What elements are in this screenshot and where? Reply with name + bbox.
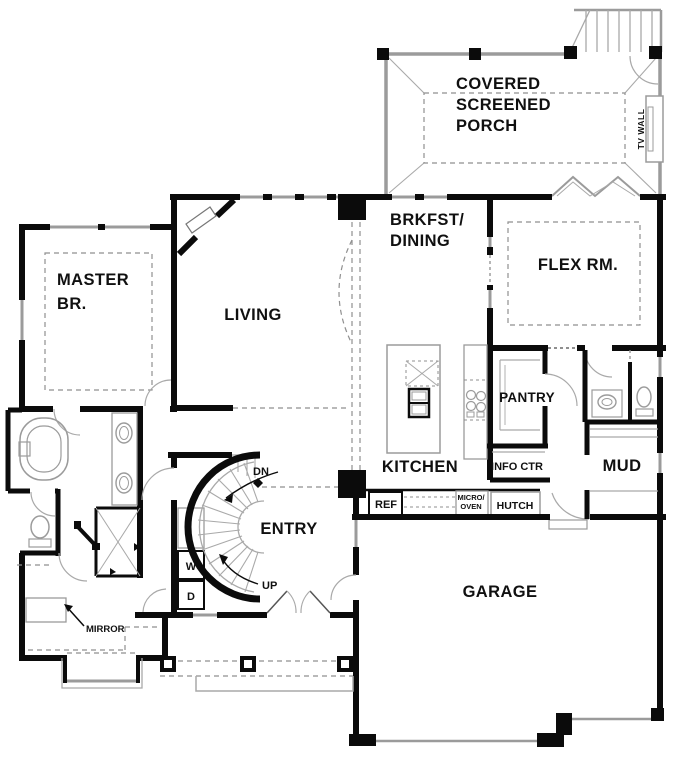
porch-label-line2: SCREENED — [456, 96, 551, 114]
micro-label-line1: MICRO/ — [457, 493, 485, 502]
porch-post — [564, 46, 577, 59]
kitchen-counter — [464, 345, 487, 459]
double-vanity — [112, 413, 137, 505]
folding-door — [552, 177, 640, 196]
up-label: UP — [262, 580, 277, 592]
porch-post — [377, 48, 389, 60]
mud-room: MUD — [587, 422, 658, 519]
kitchen-island — [387, 345, 440, 453]
corner-door — [179, 200, 234, 254]
porch-post — [469, 48, 481, 60]
front-porch — [160, 656, 353, 691]
corner-post — [338, 194, 366, 220]
hutch-label: HUTCH — [497, 500, 534, 512]
master-label-line2: BR. — [57, 295, 87, 313]
master-closet: MIRROR — [17, 553, 167, 688]
master-label-line1: MASTER — [57, 271, 129, 289]
ref-label: REF — [375, 499, 397, 511]
pantry: PANTRY — [487, 345, 577, 446]
entry-label: ENTRY — [260, 520, 317, 538]
shower — [74, 508, 140, 576]
appliance-row: REF MICRO/ OVEN HUTCH — [338, 470, 589, 529]
exterior-stair — [570, 10, 661, 52]
wc-door-swing — [31, 492, 55, 516]
mirror-dresser — [26, 598, 66, 622]
kitchen-label: KITCHEN — [382, 458, 458, 476]
hall-door-swing — [585, 350, 612, 377]
floor-plan-page: COVERED SCREENED PORCH TV WALL — [0, 0, 681, 768]
entry: DN UP ENTRY — [135, 455, 358, 743]
dn-label: DN — [253, 466, 269, 478]
kitchen: KITCHEN — [382, 345, 487, 476]
garage: GARAGE — [349, 517, 666, 747]
tv-wall-label: TV WALL — [636, 109, 646, 150]
master-toilet — [29, 516, 51, 547]
porch-label-line3: PORCH — [456, 117, 518, 135]
wall-post — [338, 470, 366, 498]
tv-wall-niche — [646, 96, 663, 162]
mud-label: MUD — [603, 457, 642, 475]
powder-bath — [585, 350, 662, 422]
info-ctr-label: INFO CTR — [491, 461, 543, 473]
porch-post — [649, 46, 662, 59]
closet-door-swing — [59, 553, 87, 581]
living-label: LIVING — [224, 306, 281, 324]
pantry-label: PANTRY — [499, 390, 555, 405]
covered-screened-porch: COVERED SCREENED PORCH TV WALL — [377, 10, 663, 196]
porch-label-line1: COVERED — [456, 75, 540, 93]
front-double-door — [267, 591, 330, 613]
garage-door-swing — [552, 493, 589, 519]
garage-step — [549, 520, 587, 529]
mirror-label: MIRROR — [86, 624, 125, 635]
closet-door2-swing — [143, 589, 166, 612]
info-ctr: INFO CTR — [491, 452, 545, 473]
arch-ceiling-line — [339, 240, 352, 344]
powder-sink — [592, 390, 622, 417]
brkfst-label-line1: BRKFST/ — [390, 211, 464, 229]
living-room: LIVING — [174, 222, 360, 487]
entry-side-door-swing — [331, 575, 356, 600]
powder-toilet — [636, 387, 653, 416]
master-bedroom: MASTER BR. — [19, 224, 177, 435]
brkfst-label-line2: DINING — [390, 232, 450, 250]
bathtub — [19, 418, 68, 480]
micro-label-line2: OVEN — [460, 502, 481, 511]
dryer-label: D — [187, 591, 195, 603]
brkfst-dining: BRKFST/ DINING — [390, 211, 464, 250]
garage-label: GARAGE — [463, 583, 538, 601]
flex-label: FLEX RM. — [538, 256, 618, 274]
floor-plan-drawing: COVERED SCREENED PORCH TV WALL — [0, 0, 681, 768]
master-door-swing — [145, 380, 171, 406]
laundry-door-swing — [142, 468, 174, 500]
